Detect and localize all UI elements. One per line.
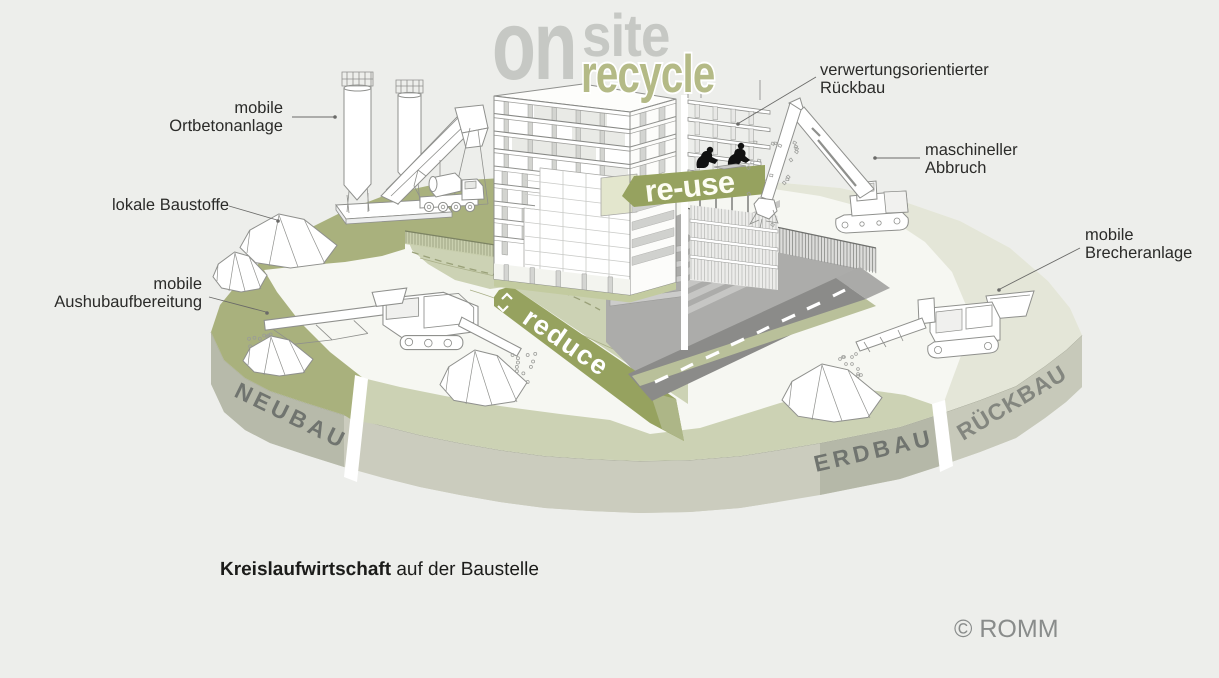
svg-text:Ortbetonanlage: Ortbetonanlage bbox=[169, 117, 283, 135]
svg-text:Rückbau: Rückbau bbox=[820, 79, 885, 97]
svg-text:© ROMM: © ROMM bbox=[954, 615, 1059, 643]
svg-text:mobile: mobile bbox=[1085, 226, 1134, 244]
svg-text:mobile: mobile bbox=[153, 275, 202, 293]
svg-text:Brecheranlage: Brecheranlage bbox=[1085, 244, 1192, 262]
svg-text:lokale Baustoffe: lokale Baustoffe bbox=[112, 196, 229, 214]
svg-text:Aushubaufbereitung: Aushubaufbereitung bbox=[54, 293, 202, 311]
svg-text:mobile: mobile bbox=[234, 99, 283, 117]
svg-text:Kreislaufwirtschaft auf der Ba: Kreislaufwirtschaft auf der Baustelle bbox=[220, 559, 539, 580]
svg-text:on: on bbox=[492, 0, 575, 100]
svg-text:maschineller: maschineller bbox=[925, 141, 1018, 159]
svg-text:verwertungsorientierter: verwertungsorientierter bbox=[820, 61, 989, 79]
svg-text:recycle: recycle bbox=[581, 45, 715, 104]
svg-text:Abbruch: Abbruch bbox=[925, 159, 986, 177]
